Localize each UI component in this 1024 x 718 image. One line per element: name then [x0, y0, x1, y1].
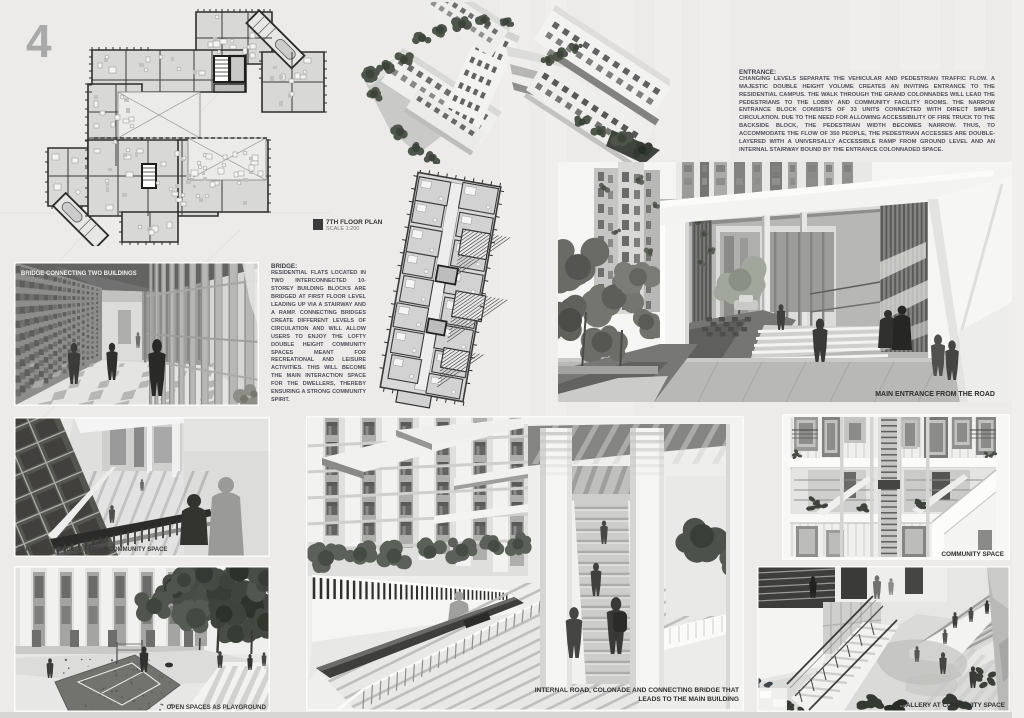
svg-text:GALLERY AT COMMUNITY SPACE: GALLERY AT COMMUNITY SPACE: [901, 702, 1006, 709]
svg-text:MAIN ENTRANCE FROM THE ROAD: MAIN ENTRANCE FROM THE ROAD: [875, 391, 995, 398]
svg-text:COMMUNITY SPACE: COMMUNITY SPACE: [941, 551, 1004, 558]
svg-text:LEADS TO THE MAIN BUILDING: LEADS TO THE MAIN BUILDING: [638, 696, 739, 703]
svg-text:INTERNAL ROAD, COLONADE AND CO: INTERNAL ROAD, COLONADE AND CONNECTING B…: [535, 687, 739, 694]
svg-text:MULTILAYER DOUBLE HEIGHT COMMU: MULTILAYER DOUBLE HEIGHT COMMUNITY SPACE: [18, 547, 167, 553]
svg-text:OPEN SPACES AS PLAYGROUND: OPEN SPACES AS PLAYGROUND: [167, 704, 267, 711]
svg-text:BRIDGE CONNECTING TWO BUILDING: BRIDGE CONNECTING TWO BUILDINGS: [21, 271, 137, 277]
